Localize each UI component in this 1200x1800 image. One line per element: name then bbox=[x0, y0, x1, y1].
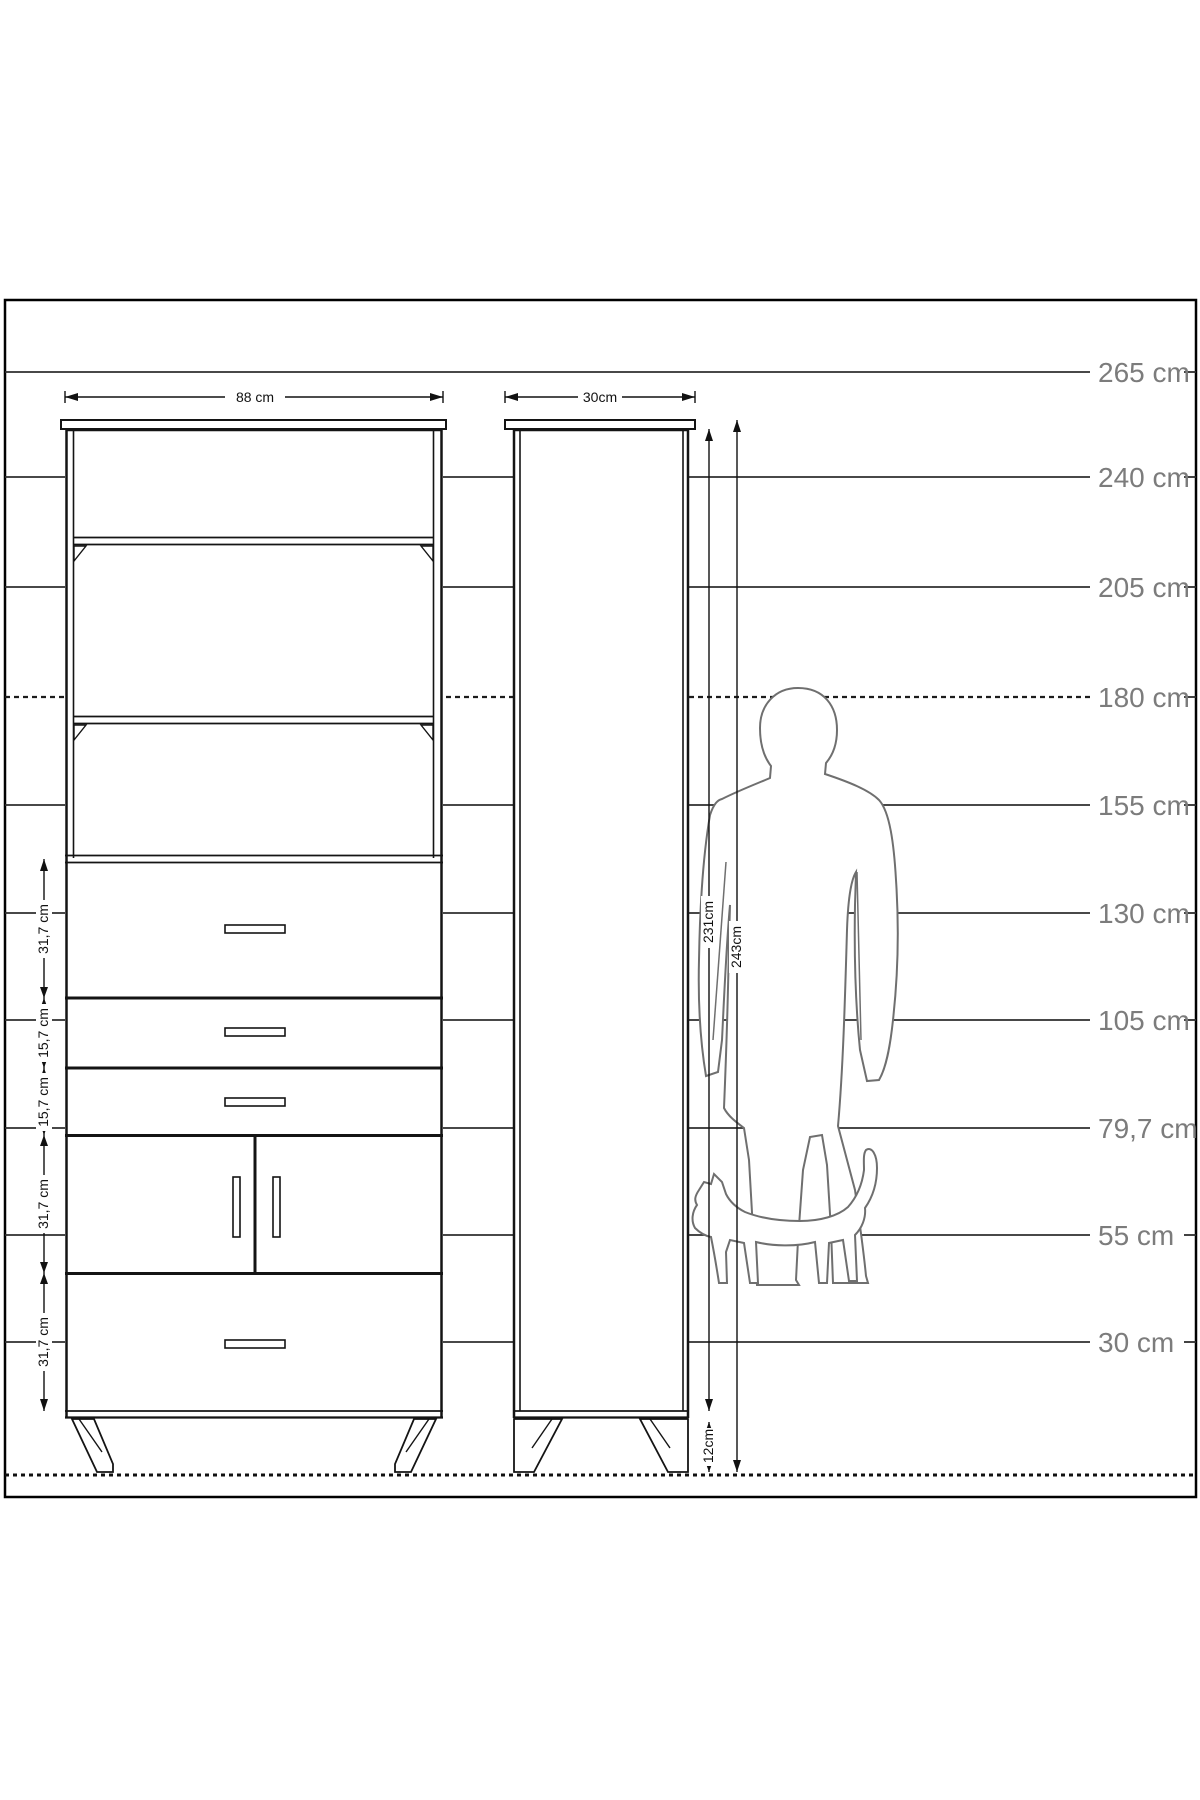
section-label-drawer-4: 31,7 cm bbox=[35, 1317, 51, 1367]
leg-height-dimension: 12cm bbox=[700, 1422, 717, 1472]
front-width-label: 88 cm bbox=[236, 389, 274, 405]
section-label-drawer-3: 15,7 cm bbox=[35, 1077, 51, 1127]
side-top-cap bbox=[505, 420, 695, 429]
diagram-canvas: 265 cm 240 cm 205 cm 180 cm 155 cm 130 c… bbox=[0, 0, 1200, 1800]
body-height-label: 231cm bbox=[700, 901, 716, 943]
section-label-drawer-2: 15,7 cm bbox=[35, 1008, 51, 1058]
side-depth-label: 30cm bbox=[583, 389, 617, 405]
furniture-dimension-diagram-page: 265 cm 240 cm 205 cm 180 cm 155 cm 130 c… bbox=[0, 0, 1200, 1800]
side-view-cabinet bbox=[505, 420, 695, 1472]
scale-label-240: 240 cm bbox=[1098, 462, 1190, 493]
front-view-cabinet bbox=[61, 420, 446, 1472]
scale-label-180: 180 cm bbox=[1098, 682, 1190, 713]
scale-label-205: 205 cm bbox=[1098, 572, 1190, 603]
front-top-cap bbox=[61, 420, 446, 429]
total-height-label: 243cm bbox=[728, 926, 744, 968]
section-label-drawer-1: 31,7 cm bbox=[35, 904, 51, 954]
section-label-doors: 31,7 cm bbox=[35, 1179, 51, 1229]
scale-label-105: 105 cm bbox=[1098, 1005, 1190, 1036]
scale-label-79-7: 79,7 cm bbox=[1098, 1113, 1198, 1144]
side-body-fill bbox=[513, 429, 689, 1418]
scale-label-265: 265 cm bbox=[1098, 357, 1190, 388]
scale-label-130: 130 cm bbox=[1098, 898, 1190, 929]
scale-label-30: 30 cm bbox=[1098, 1327, 1174, 1358]
scale-label-55: 55 cm bbox=[1098, 1220, 1174, 1251]
leg-height-label: 12cm bbox=[700, 1429, 716, 1463]
scale-label-155: 155 cm bbox=[1098, 790, 1190, 821]
